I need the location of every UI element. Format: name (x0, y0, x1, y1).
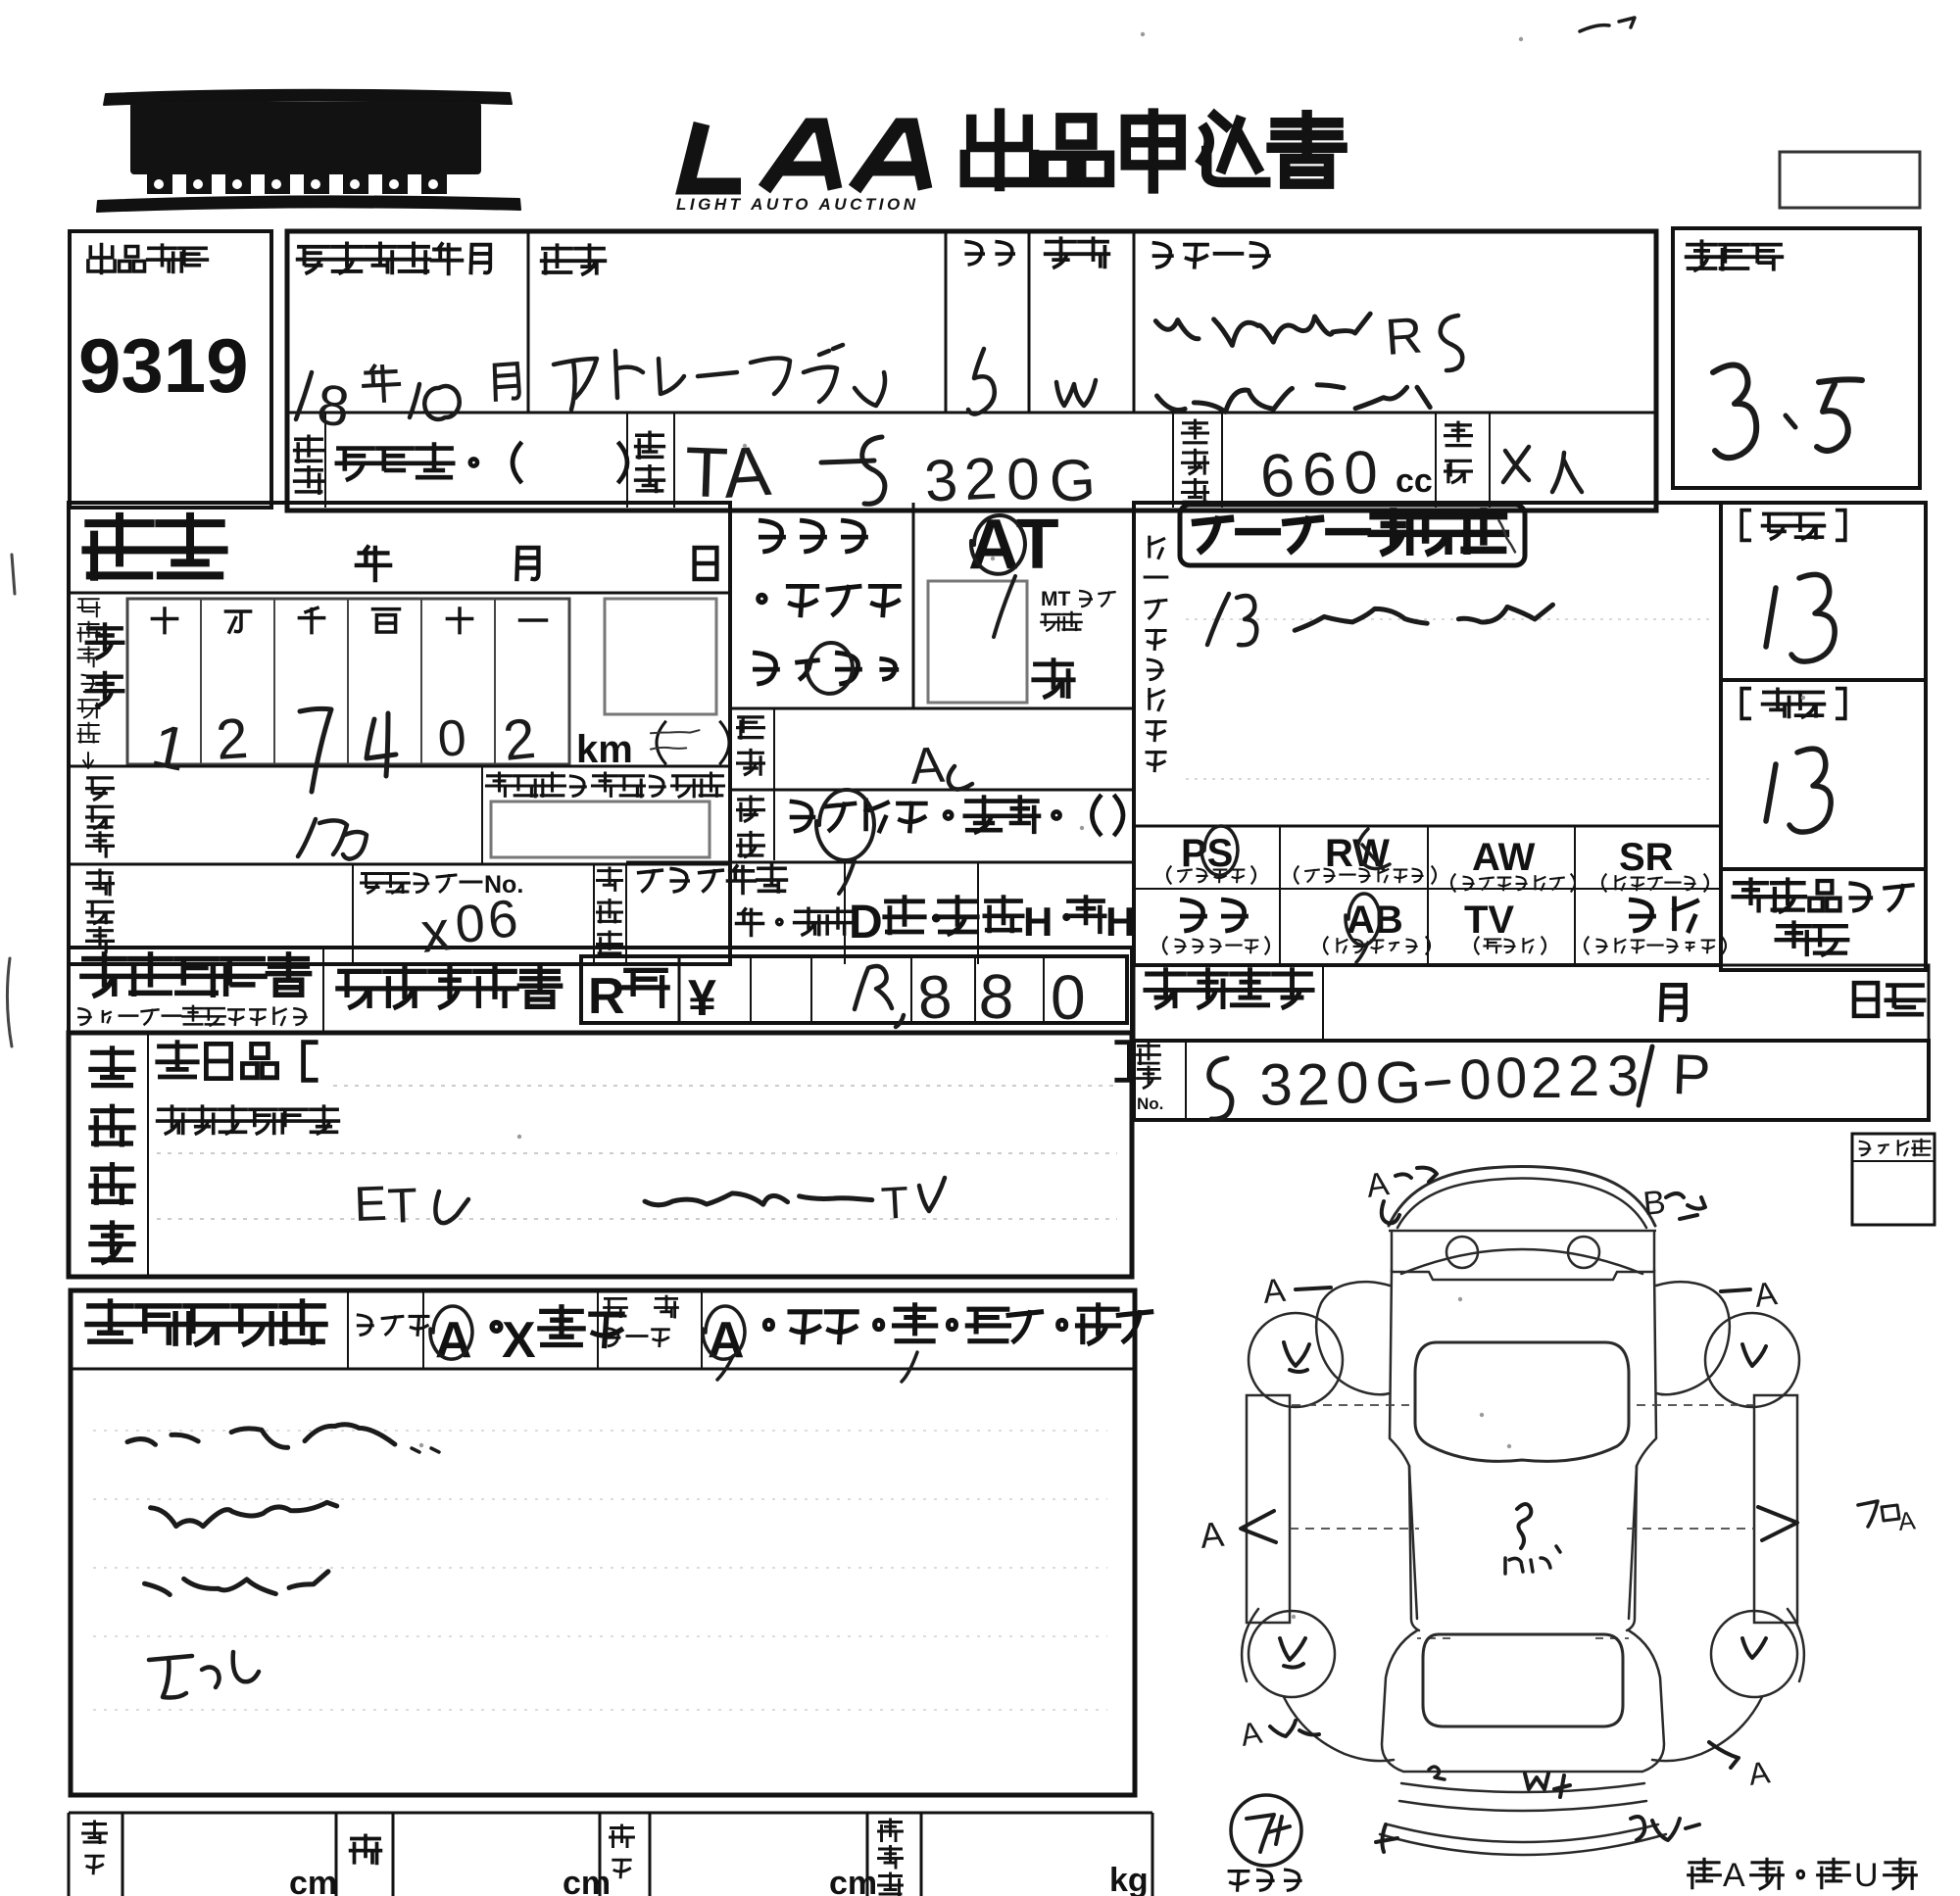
svg-text:AW: AW (1472, 836, 1536, 879)
svg-text:H: H (1105, 899, 1135, 945)
svg-text:X: X (502, 1312, 536, 1369)
svg-text:km: km (576, 728, 633, 771)
svg-text:9319: 9319 (78, 322, 249, 409)
svg-text:8: 8 (977, 960, 1015, 1033)
svg-text:0: 0 (454, 894, 487, 954)
svg-text:T: T (386, 1178, 417, 1234)
svg-text:U: U (1854, 1857, 1879, 1894)
svg-text:6: 6 (1257, 441, 1297, 511)
svg-text:0: 0 (1335, 1049, 1370, 1116)
svg-text:6: 6 (1300, 440, 1338, 510)
svg-text:LIGHT AUTO AUCTION: LIGHT AUTO AUCTION (676, 195, 918, 214)
svg-text:0: 0 (1005, 446, 1041, 512)
svg-text:kg: kg (1109, 1862, 1149, 1896)
svg-text:G: G (1048, 447, 1097, 514)
svg-text:R: R (1384, 307, 1425, 365)
svg-text:H: H (1023, 899, 1053, 945)
svg-text:cm: cm (289, 1865, 337, 1896)
svg-text:SR: SR (1619, 836, 1674, 879)
svg-text:cc: cc (1396, 462, 1433, 500)
svg-text:AT: AT (968, 506, 1061, 584)
svg-text:0: 0 (436, 709, 468, 768)
svg-text:A: A (1199, 1514, 1226, 1556)
svg-text:6: 6 (485, 889, 520, 950)
svg-text:P: P (1672, 1043, 1712, 1107)
svg-text:D: D (849, 897, 883, 948)
svg-text:cm: cm (563, 1865, 611, 1896)
svg-text:2: 2 (1568, 1045, 1599, 1108)
svg-text:A: A (1261, 1272, 1288, 1311)
svg-text:A: A (721, 432, 773, 513)
svg-text:G: G (1374, 1048, 1422, 1116)
svg-text:¥: ¥ (688, 970, 716, 1027)
svg-text:2: 2 (1296, 1051, 1331, 1118)
svg-text:A: A (1723, 1857, 1745, 1894)
svg-text:3: 3 (1607, 1045, 1639, 1108)
svg-text:3: 3 (1258, 1051, 1294, 1118)
svg-text:MT: MT (1041, 588, 1070, 610)
svg-text:No.: No. (1137, 1094, 1163, 1113)
svg-text:cm: cm (829, 1865, 877, 1896)
svg-text:E: E (353, 1176, 387, 1232)
svg-text:8: 8 (915, 963, 954, 1033)
svg-text:0: 0 (1458, 1047, 1493, 1112)
svg-text:TV: TV (1464, 899, 1514, 942)
svg-text:A: A (908, 737, 947, 796)
svg-text:R: R (588, 968, 625, 1025)
svg-text:T: T (880, 1177, 910, 1229)
svg-text:2: 2 (501, 706, 539, 773)
svg-text:0: 0 (1343, 439, 1379, 508)
svg-text:2: 2 (962, 445, 999, 512)
svg-text:0: 0 (1495, 1046, 1527, 1110)
svg-text:B: B (1641, 1184, 1668, 1223)
svg-text:0: 0 (1051, 962, 1086, 1033)
svg-text:3: 3 (922, 447, 959, 514)
svg-text:8: 8 (315, 372, 353, 439)
svg-text:2: 2 (1531, 1046, 1562, 1110)
svg-text:2: 2 (214, 706, 250, 772)
